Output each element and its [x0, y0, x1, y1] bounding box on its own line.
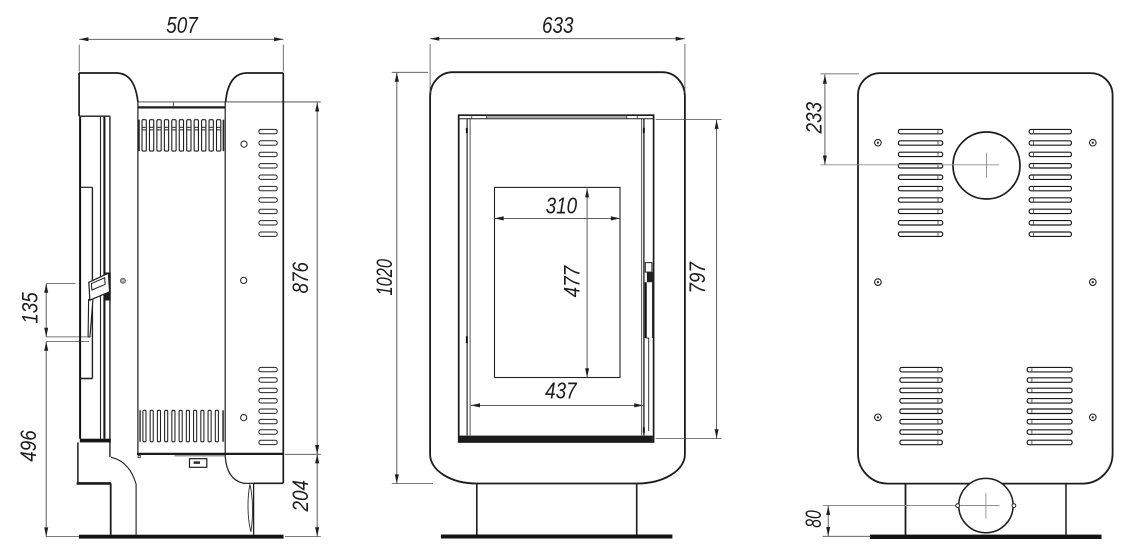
svg-text:437: 437	[545, 378, 577, 404]
svg-text:633: 633	[542, 12, 574, 38]
svg-text:477: 477	[560, 265, 585, 297]
svg-text:876: 876	[288, 261, 313, 293]
svg-text:310: 310	[546, 193, 578, 219]
svg-text:1020: 1020	[372, 258, 397, 295]
svg-text:135: 135	[17, 292, 42, 324]
svg-text:80: 80	[801, 510, 826, 528]
svg-text:233: 233	[802, 101, 827, 134]
svg-text:797: 797	[685, 262, 710, 294]
svg-text:204: 204	[288, 480, 313, 512]
svg-text:496: 496	[16, 430, 41, 462]
svg-text:507: 507	[166, 12, 198, 38]
